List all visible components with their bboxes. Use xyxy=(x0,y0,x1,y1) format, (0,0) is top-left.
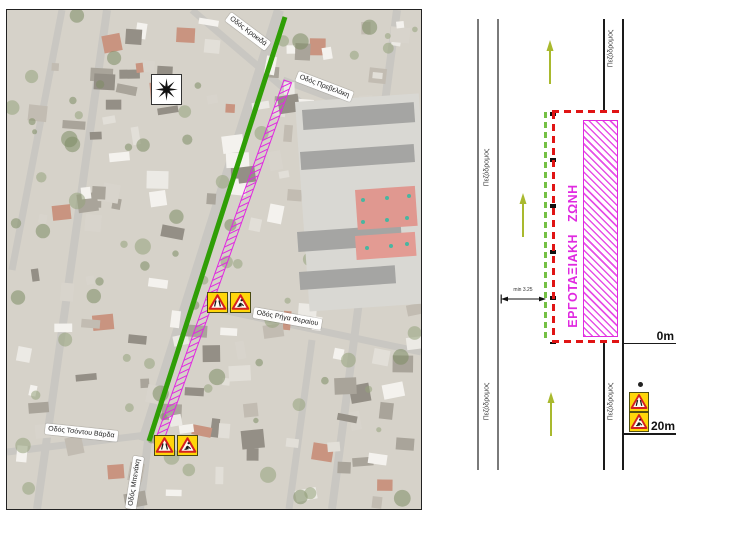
traffic-direction-arrow-bottom xyxy=(545,390,557,438)
north-compass-icon xyxy=(151,74,182,105)
station-marker-0m: 0m xyxy=(622,329,674,343)
lane-width-dimension-label: min 3.25 xyxy=(496,287,550,293)
station-line-20m xyxy=(623,433,676,435)
right-sidewalk-outer-edge xyxy=(622,19,624,470)
traffic-plan-sheet: Οδός Κροκιδά Οδός Πρεβελάκη Οδός Ρήγα Φε… xyxy=(0,0,731,533)
road-narrows-sign-icon xyxy=(627,392,651,412)
sign-post-dot xyxy=(638,382,643,387)
right-sidewalk-inner-edge-lower xyxy=(603,342,605,470)
traffic-direction-arrow-top xyxy=(544,38,556,86)
advance-warning-sign-stack xyxy=(627,392,651,432)
road-works-sign-icon xyxy=(627,412,651,432)
work-zone-label: ΕΡΓΟΤΑΞΙΑΚΗ ΖΩΝΗ xyxy=(566,180,580,332)
left-sidewalk-inner-edge xyxy=(497,19,499,470)
lane-width-dimension-arrow xyxy=(500,294,547,304)
aerial-map-panel: Οδός Κροκιδά Οδός Πρεβελάκη Οδός Ρήγα Φε… xyxy=(6,9,422,510)
lane-separation-dashed-line xyxy=(544,112,547,342)
road-narrows-sign-icon xyxy=(154,435,175,456)
traffic-direction-arrow-left-lane xyxy=(517,191,529,239)
work-zone-hatched-area xyxy=(583,120,618,337)
map-warning-signs-lower xyxy=(154,435,198,456)
sidewalk-label-right-bottom: Πεζόδρομος xyxy=(608,381,615,423)
road-works-sign-icon xyxy=(230,292,251,313)
road-narrows-sign-icon xyxy=(207,292,228,313)
road-works-sign-icon xyxy=(177,435,198,456)
right-sidewalk-inner-edge-upper xyxy=(603,19,605,112)
work-zone-barrier-top xyxy=(552,110,622,113)
work-zone-barrier-bottom xyxy=(552,340,621,343)
work-zone-barrier-left xyxy=(552,112,555,342)
sidewalk-label-left-bottom: Πεζόδρομος xyxy=(484,381,491,423)
left-sidewalk-outer-edge xyxy=(477,19,479,470)
sidewalk-label-left-top: Πεζόδρομος xyxy=(484,147,491,189)
map-warning-signs-upper xyxy=(207,292,251,313)
sidewalk-label-right-top: Πεζόδρομος xyxy=(608,28,615,70)
